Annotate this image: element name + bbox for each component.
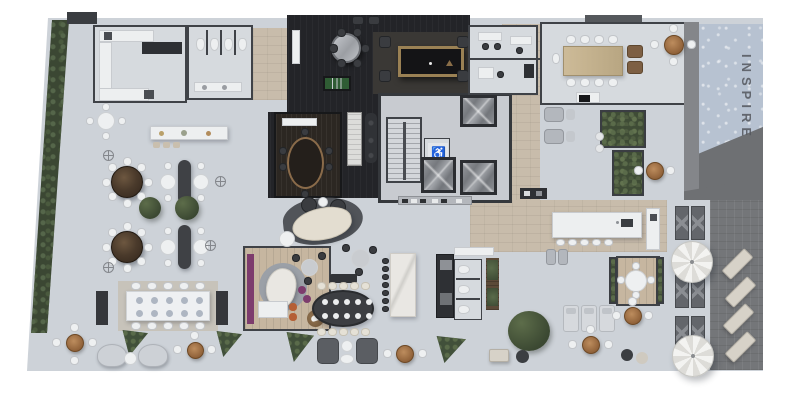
bar-stool [604,239,613,246]
chair [190,331,199,340]
restroom-south [454,259,482,320]
stall-partition [456,278,480,280]
chair [337,59,346,68]
credenza [282,118,317,126]
staircase [386,117,422,183]
chair [108,192,117,201]
kitchen-room [93,25,187,103]
bar-stool [382,274,389,280]
planter-bed [656,257,664,304]
chair [304,277,312,285]
lounge-chair-brown [627,61,643,74]
tv-screen [579,95,590,102]
chair [482,43,489,50]
chair [644,311,653,320]
lounge-bar [292,30,300,64]
ceiling-fan [103,262,114,273]
round-table [625,270,647,292]
chair [131,282,141,290]
place-setting [344,313,350,319]
chair [337,28,346,37]
chair [325,147,333,155]
faucet [616,221,619,224]
chair [173,345,182,354]
buffet-items [159,131,164,136]
billiard-ball [429,62,432,65]
kitchen-island [552,212,642,238]
umbrella-table [187,342,204,359]
chair [102,243,111,252]
place-setting [355,299,361,305]
bar-stool [556,239,565,246]
shrub-planter [139,197,161,219]
locker [402,199,408,203]
elevator [460,95,497,127]
chair [383,349,392,358]
cooktop [536,191,542,196]
bar-stool [592,239,601,246]
ceiling-fan [205,240,216,251]
sink [202,85,207,90]
chair [123,222,132,231]
cooktop [104,32,112,40]
bar-stool [382,258,389,264]
lounge-armchair [379,36,391,48]
chair [144,243,153,252]
chair [164,162,172,170]
chair [108,163,117,172]
bar-stool [382,290,389,296]
orange-chair [289,303,297,311]
locker [456,199,462,203]
chair [604,340,613,349]
umbrella-table [646,162,664,180]
place-setting [166,310,173,317]
chair [580,78,590,87]
chair [594,78,604,87]
planter-bed [609,257,617,304]
chair [197,259,205,267]
chair [339,282,348,290]
toilet [458,285,470,294]
locker [441,199,447,203]
ceiling-fan [215,176,226,187]
stool [173,142,180,148]
place-setting [355,313,361,319]
bar-stool [382,282,389,288]
armchair-gray [544,107,564,122]
chair [118,117,126,125]
side-table [318,197,328,207]
chair [350,328,359,336]
side-table [279,231,295,247]
stair-rail [403,122,406,180]
desk [478,67,494,79]
chair [650,40,659,49]
locker [420,199,426,203]
bar-stool [580,239,589,246]
toilet [210,38,219,51]
kitchen-counter [99,88,149,101]
corridor-restrooms [253,28,287,100]
umbrella-table [624,307,642,325]
chair [361,328,370,336]
chair [325,163,333,171]
planter-bench [486,258,499,310]
tufted-bench [365,113,377,163]
patio-umbrella [672,335,714,377]
stool [153,142,160,148]
place-setting [333,313,339,319]
tree-large [508,311,550,351]
chair [195,282,205,290]
galley-kitchen [436,254,454,318]
chair [301,128,309,136]
outdoor-sofa [356,338,378,364]
chair [137,257,146,266]
rattan-lounge-chair [97,344,127,367]
place-setting [136,297,143,304]
ottoman [566,131,575,142]
chair [88,338,97,347]
umbrella-table [66,334,84,352]
lounge-armchair [379,70,391,82]
buffet-items [206,131,211,136]
party-oval-table [312,290,374,327]
chair [317,282,326,290]
place-setting [196,310,203,317]
restroom-north-a [187,25,253,100]
chair [102,178,111,187]
chair [179,282,189,290]
chair [632,262,640,270]
parcel-lockers [398,196,472,205]
bench-plants [487,288,498,306]
chair [608,78,618,87]
chair [144,178,153,187]
toilet [224,38,233,51]
chair [86,117,94,125]
foosball-table [323,76,351,91]
chair [566,35,576,44]
chair [594,35,604,44]
chair [353,59,362,68]
chair [131,322,141,330]
chair [163,322,173,330]
chaise-lounge [563,305,579,332]
chair [318,252,326,260]
coffee-table [341,340,353,352]
armchair-gray [558,249,568,265]
purple-pouf [303,295,311,303]
appliance [440,260,452,270]
range-hood [142,42,182,54]
place-setting [181,297,188,304]
booth-table [193,174,209,190]
chair [669,57,678,66]
bistro-table [351,249,370,268]
coffee-table-oval [340,354,354,364]
umbrella-table [664,35,684,55]
appliance [650,214,657,221]
booth-table [160,174,176,190]
craft-desk [258,301,288,318]
chair [137,228,146,237]
place-setting [151,310,158,317]
elevator [421,157,456,193]
chair [207,345,216,354]
billiard-rack [446,60,453,66]
chair [197,227,205,235]
stall-partition [234,30,236,55]
pouf-dark [516,350,529,363]
chair [361,282,370,290]
locker [432,199,438,203]
stall-partition [456,298,480,300]
chair [147,322,157,330]
chair [666,166,675,175]
chair [628,297,637,306]
chair [52,338,61,347]
chair [108,228,117,237]
prep-counter [646,208,660,250]
oval-dining-table [287,137,324,189]
lounge-chair-brown [627,45,643,58]
ceiling-fan [103,150,114,161]
tv-cabinet [576,92,600,103]
outdoor-sofa [317,338,339,364]
bar-stool [382,298,389,304]
chair [634,166,643,175]
chair [279,163,287,171]
chair [279,147,287,155]
sink [524,191,530,196]
pool-lettering: INSPIRE [739,54,754,174]
marble-bar-table [390,253,416,317]
place-setting [322,313,328,319]
chair [566,78,576,87]
booth-banquette [178,225,191,269]
chair [197,194,205,202]
chair [612,311,621,320]
place-setting [322,299,328,305]
toilet [458,265,470,274]
place-setting [366,299,372,305]
chair [102,132,110,140]
chair [164,227,172,235]
island-sink [621,219,633,227]
bistro-table [97,112,115,130]
back-counter [454,247,494,256]
bar-stool [382,306,389,312]
chair [494,43,501,50]
purple-banquette [247,254,254,324]
armchair-gray [546,249,556,265]
place-setting [344,299,350,305]
chair [418,349,427,358]
sink [222,85,227,90]
chair [328,328,337,336]
swimming-pool: INSPIRE [699,24,763,190]
tree [175,196,199,220]
stool [163,142,170,148]
chair [163,282,173,290]
sideboard [216,291,228,325]
chair [102,103,110,111]
day-bed [489,349,509,362]
private-dining-room [274,112,342,198]
chair [147,282,157,290]
sun-lounger [691,206,705,240]
pot-stool [595,144,604,153]
chair [137,163,146,172]
toilet [238,38,247,51]
chair [317,328,326,336]
rattan-lounge-chair [138,344,168,367]
chair [179,322,189,330]
chair [669,24,678,33]
chair [580,35,590,44]
place-setting [136,310,143,317]
floorplan-render: ♿ [0,0,800,400]
chair [369,246,377,254]
billiards-table [398,46,464,77]
place-setting [196,297,203,304]
sun-lounger [675,206,689,240]
chair [123,199,132,208]
chair [123,264,132,273]
desk [510,36,532,45]
orange-chair [289,313,297,321]
chair [687,40,696,49]
appliance [440,293,452,305]
bar-stool [382,266,389,272]
chair [350,282,359,290]
cabinet [524,64,534,78]
chair [497,71,504,78]
ottoman [566,109,575,120]
chair [70,323,79,332]
long-dining-table [126,291,210,321]
chair [552,53,560,64]
chair [586,325,595,334]
locker [411,199,417,203]
desk [478,32,502,41]
chair [329,44,338,53]
oven [144,90,154,99]
chair [197,162,205,170]
canopy-roof [67,12,97,24]
chair [342,244,350,252]
stall-partition [220,30,222,55]
booth-table [160,239,176,255]
office-divider-wall [470,58,540,60]
place-setting [366,313,372,319]
buffet-items [181,130,187,136]
chair [353,28,362,37]
sideboard [96,291,108,325]
chair [647,276,655,284]
long-wood-table [563,46,623,76]
chair [292,254,300,262]
chair [195,322,205,330]
chair [568,340,577,349]
pot-stool [595,132,604,141]
chair [516,47,523,54]
bistro-table [301,259,318,276]
toilet [458,305,470,314]
lounge-armchair [368,16,380,25]
lounge-armchair [352,16,364,25]
chair [608,35,618,44]
place-setting [151,297,158,304]
place-setting [166,297,173,304]
chair [123,157,132,166]
umbrella-table [582,336,600,354]
patio-umbrella [671,241,713,283]
display-shelf [347,112,362,166]
chair [617,276,625,284]
chair [164,194,172,202]
purple-pouf [298,286,306,294]
chair [339,328,348,336]
umbrella-table [396,345,414,363]
office-rooms [468,25,538,95]
chair [70,356,79,365]
toilet [196,38,205,51]
bar-stool [568,239,577,246]
planter-bed [600,110,646,148]
chair [328,282,337,290]
stall-partition [206,30,208,55]
chair [361,44,370,53]
place-setting [181,310,188,317]
bench-plants [487,260,498,280]
pouf-beige [636,352,648,364]
armchair-gray [544,129,564,144]
kitchenette [520,188,547,199]
elevator [460,160,497,195]
pouf-dark [621,349,633,361]
ottoman [124,352,137,365]
buffet-counter [150,126,228,140]
place-setting [333,299,339,305]
chair [164,259,172,267]
